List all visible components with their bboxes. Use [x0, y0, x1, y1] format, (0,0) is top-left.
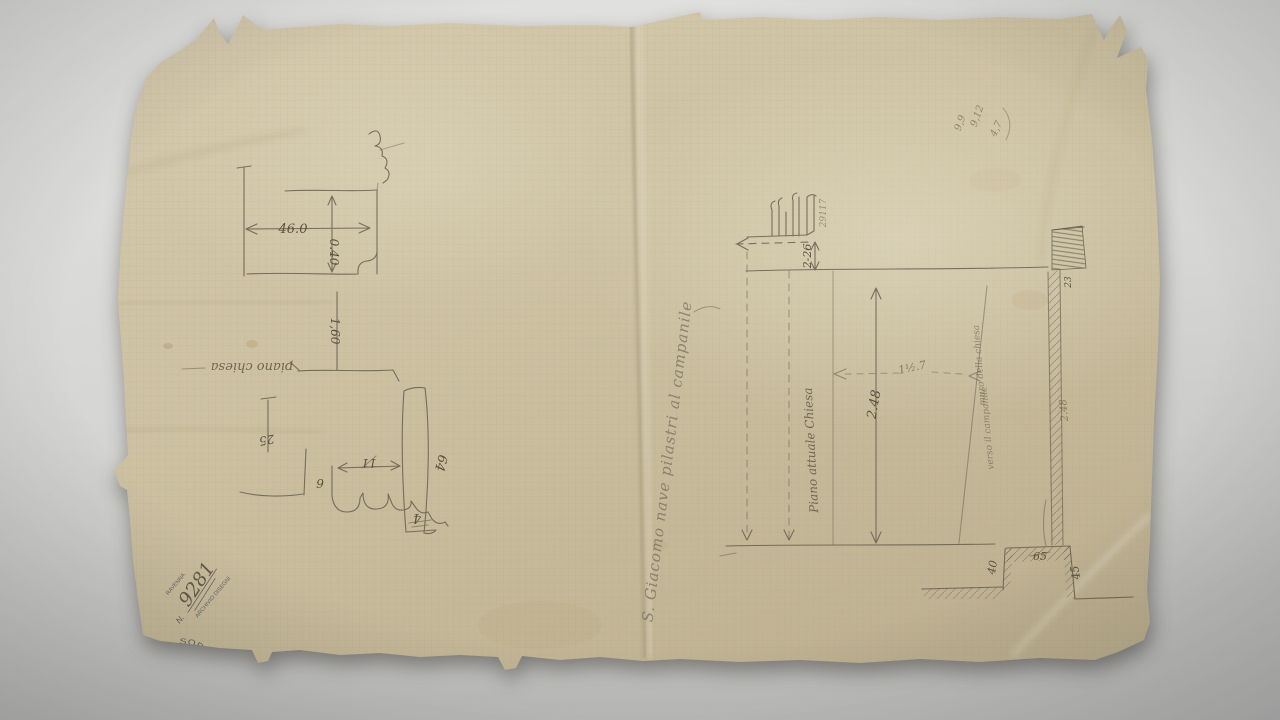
- photo-of-archival-sketch: 46.0 0.40 1,60 piano chiesa 25 6 11 64 4…: [0, 0, 1280, 720]
- vignette: [0, 0, 1280, 720]
- scene: 46.0 0.40 1,60 piano chiesa 25 6 11 64 4…: [0, 0, 1280, 720]
